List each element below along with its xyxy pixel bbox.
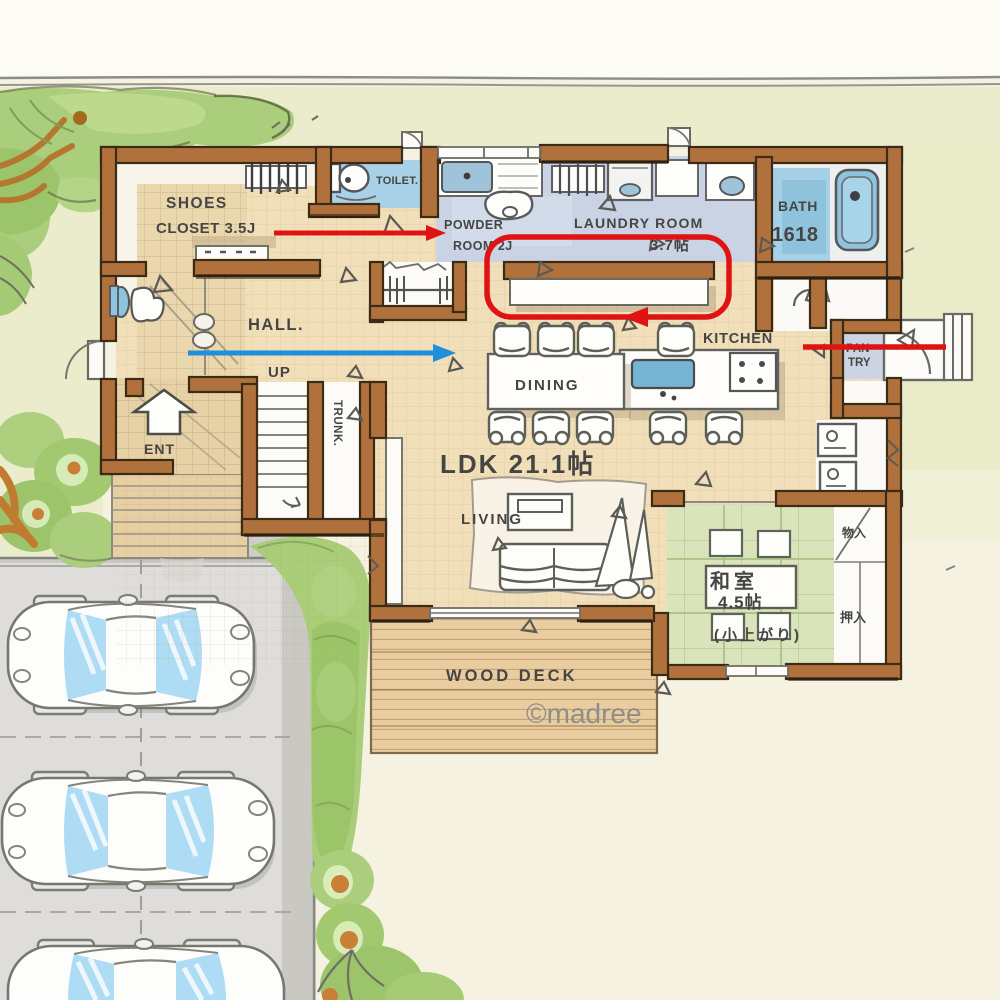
- svg-text:SHOES: SHOES: [166, 195, 228, 212]
- svg-text:ROOM 2J: ROOM 2J: [453, 239, 513, 253]
- svg-text:DINING: DINING: [515, 377, 580, 394]
- svg-text:BATH: BATH: [778, 198, 818, 214]
- svg-text:ENT: ENT: [144, 441, 175, 457]
- svg-text:CLOSET 3.5J: CLOSET 3.5J: [156, 220, 256, 237]
- svg-text:物入: 物入: [842, 525, 866, 540]
- svg-text:TRUNK.: TRUNK.: [331, 400, 343, 446]
- svg-text:HALL.: HALL.: [248, 316, 304, 334]
- svg-text:POWDER: POWDER: [444, 218, 503, 232]
- svg-text:TRY: TRY: [848, 357, 871, 369]
- svg-text:UP: UP: [268, 364, 291, 381]
- svg-text:押入: 押入: [840, 610, 866, 625]
- svg-text:KITCHEN: KITCHEN: [703, 331, 773, 347]
- svg-text:LDK 21.1帖: LDK 21.1帖: [440, 449, 595, 479]
- svg-text:LAUNDRY ROOM: LAUNDRY ROOM: [574, 215, 704, 231]
- svg-text:4.5帖: 4.5帖: [718, 592, 763, 612]
- svg-text:©madree: ©madree: [526, 698, 642, 729]
- svg-text:(小上がり): (小上がり): [714, 626, 802, 644]
- svg-text:和室: 和室: [710, 569, 758, 593]
- svg-text:WOOD DECK: WOOD DECK: [446, 667, 578, 685]
- svg-text:1618: 1618: [772, 224, 819, 246]
- svg-text:TOILET.: TOILET.: [376, 175, 418, 187]
- svg-text:LIVING: LIVING: [461, 511, 523, 528]
